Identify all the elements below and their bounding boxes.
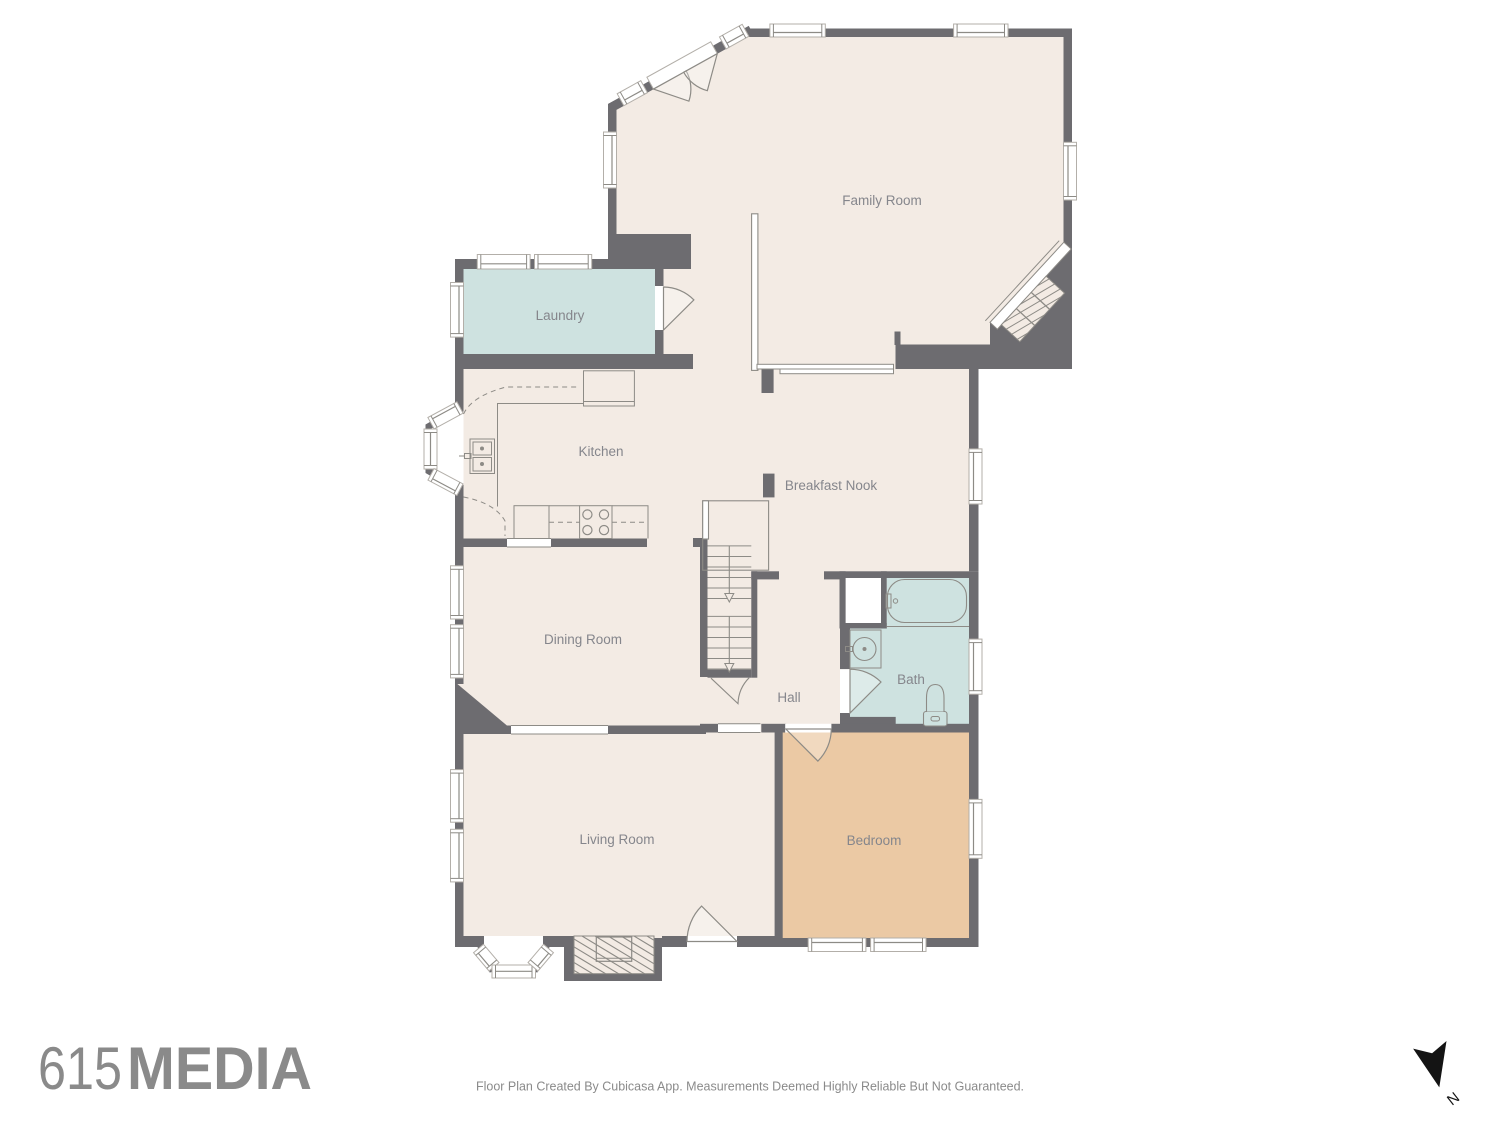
svg-text:Floor Plan Created By Cubicasa: Floor Plan Created By Cubicasa App. Meas… <box>476 1079 1024 1094</box>
svg-text:Living Room: Living Room <box>579 832 654 847</box>
svg-text:Bath: Bath <box>897 672 925 687</box>
svg-text:Breakfast Nook: Breakfast Nook <box>785 478 878 493</box>
svg-text:615MEDIA: 615MEDIA <box>38 1035 312 1102</box>
svg-text:Kitchen: Kitchen <box>578 444 623 459</box>
svg-text:Hall: Hall <box>777 690 800 705</box>
svg-text:Family Room: Family Room <box>842 193 922 208</box>
svg-text:Dining Room: Dining Room <box>544 632 622 647</box>
svg-text:Bedroom: Bedroom <box>847 833 902 848</box>
svg-text:Laundry: Laundry <box>536 308 585 323</box>
